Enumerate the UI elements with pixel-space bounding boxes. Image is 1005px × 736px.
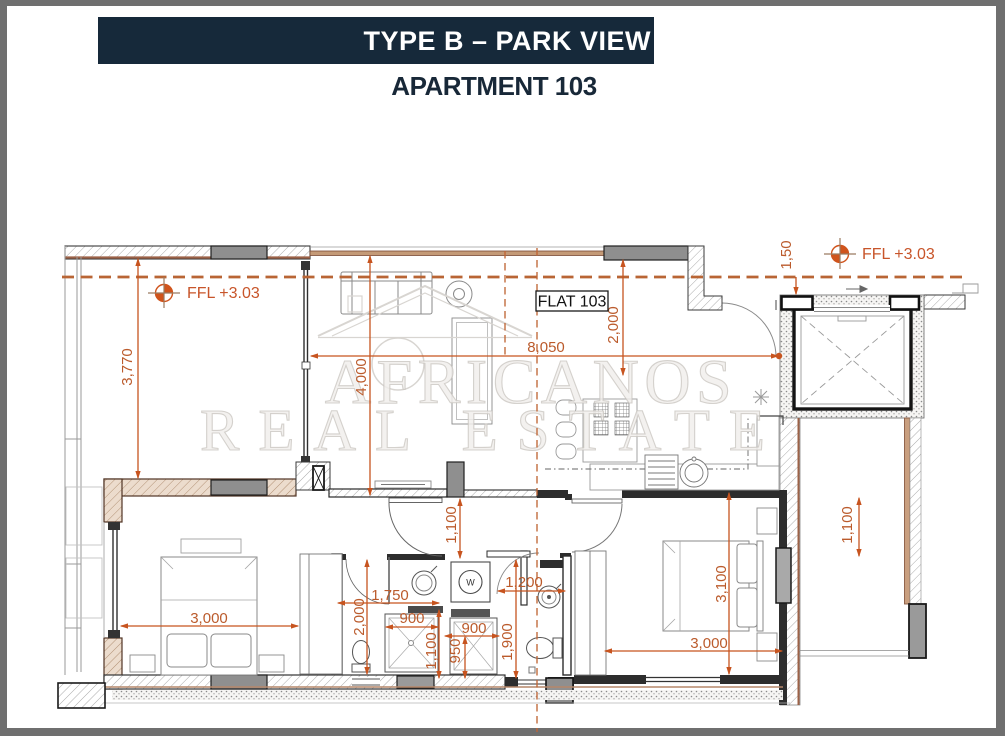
svg-text:3,000: 3,000 [690, 635, 728, 652]
svg-text:1,750: 1,750 [371, 587, 409, 604]
svg-text:900: 900 [461, 620, 486, 637]
svg-text:3,770: 3,770 [119, 348, 136, 386]
svg-text:REAL ESTATE: REAL ESTATE [200, 397, 784, 463]
svg-text:2,000: 2,000 [605, 306, 622, 344]
svg-text:950: 950 [447, 638, 464, 663]
svg-text:FFL +3.03: FFL +3.03 [187, 285, 260, 302]
svg-text:FFL +3.03: FFL +3.03 [862, 246, 935, 263]
svg-text:1,200: 1,200 [505, 574, 543, 591]
svg-text:1,900: 1,900 [499, 623, 516, 661]
svg-text:1,50: 1,50 [778, 240, 795, 269]
svg-text:4,000: 4,000 [353, 358, 370, 396]
svg-text:2,000: 2,000 [351, 598, 368, 636]
svg-text:3,000: 3,000 [190, 610, 228, 627]
svg-text:3,100: 3,100 [713, 565, 730, 603]
svg-text:1,100: 1,100 [443, 506, 460, 544]
svg-text:1,100: 1,100 [839, 506, 856, 544]
svg-text:8,050: 8,050 [527, 339, 565, 356]
svg-text:900: 900 [399, 610, 424, 627]
svg-text:W: W [466, 578, 475, 588]
svg-text:FLAT 103: FLAT 103 [538, 294, 607, 311]
svg-text:1,100: 1,100 [423, 632, 440, 670]
